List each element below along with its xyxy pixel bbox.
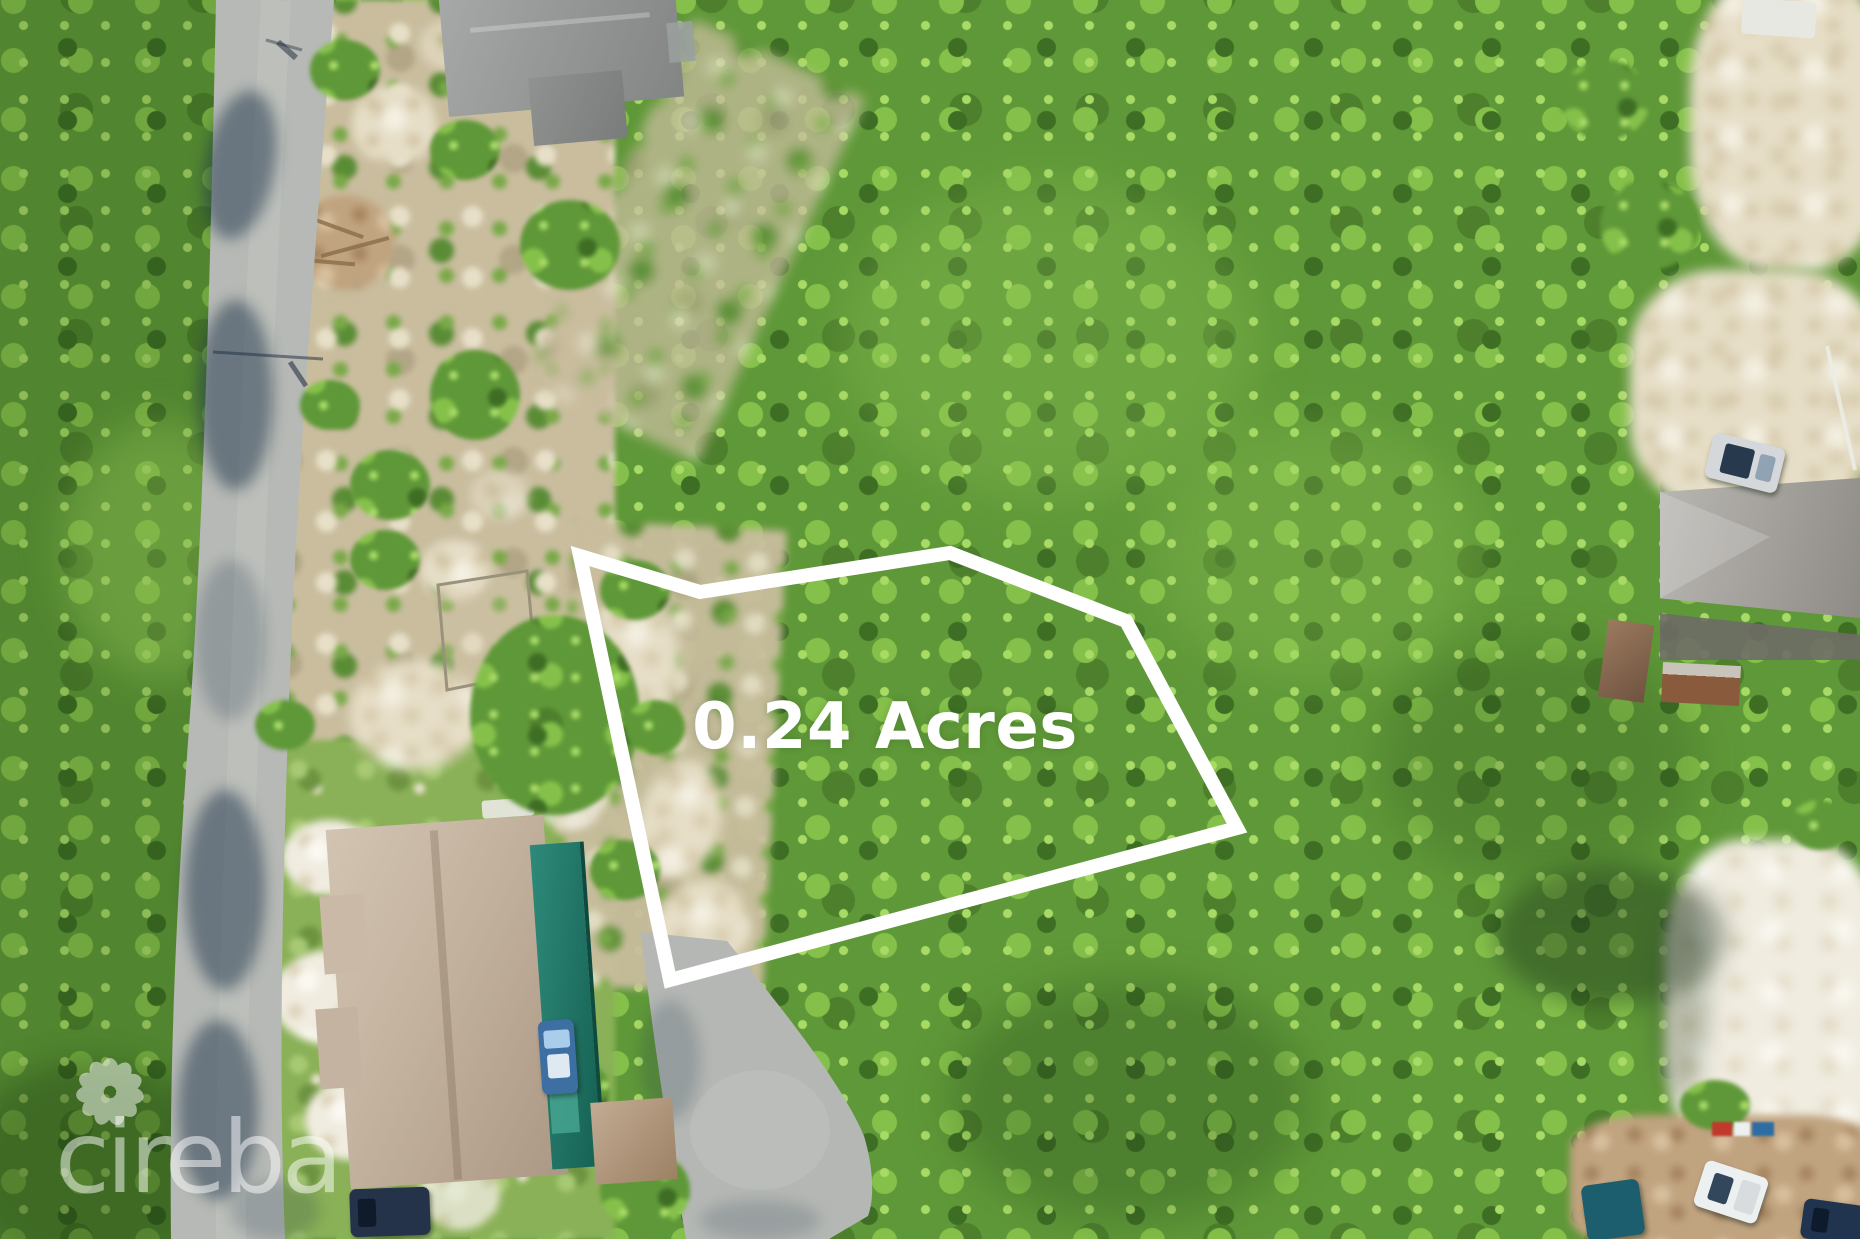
area-label: 0.24 Acres xyxy=(692,690,1078,764)
lot-boundary-polygon xyxy=(580,553,1237,980)
aerial-photo: 0.24 Acres cireba xyxy=(0,0,1860,1239)
watermark-text: cireba xyxy=(55,1108,339,1208)
